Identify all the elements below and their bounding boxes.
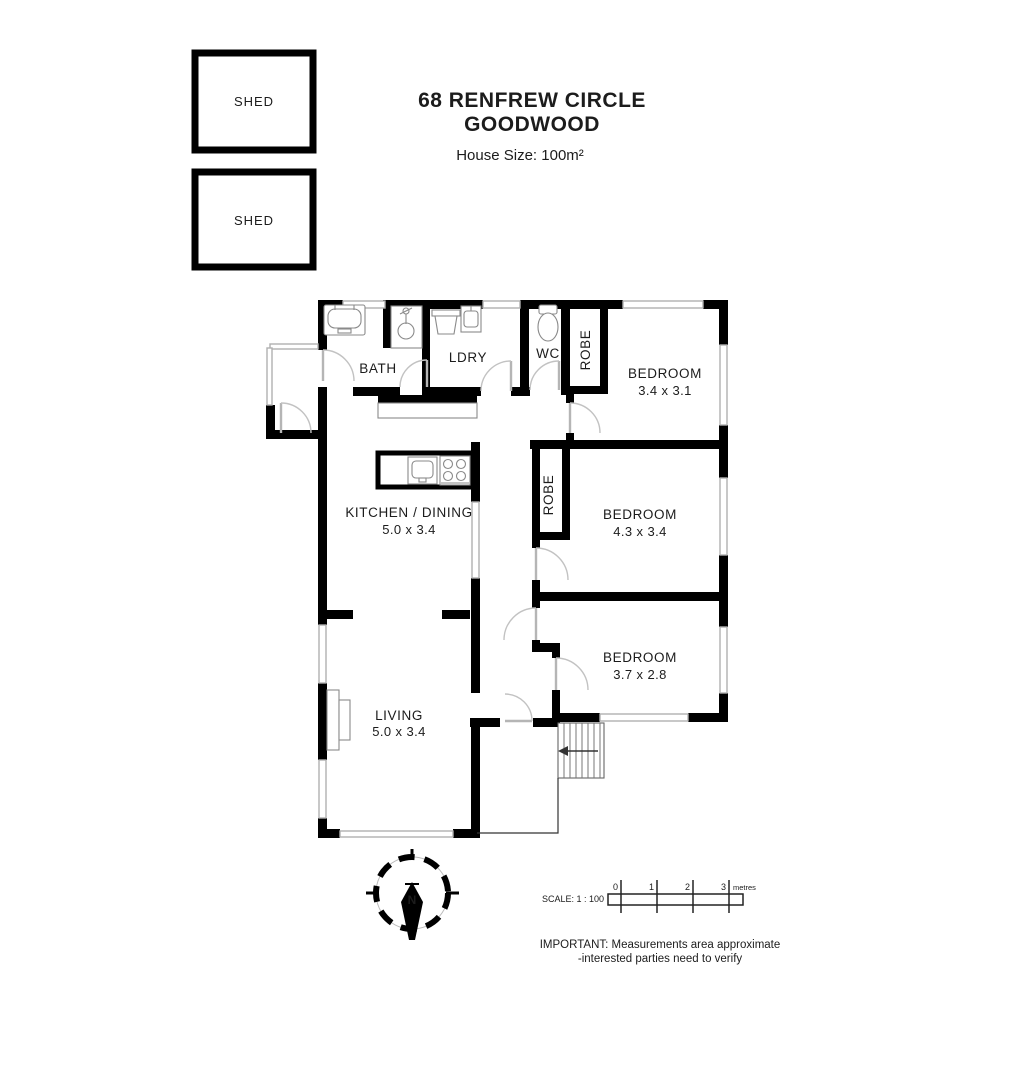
vanity-icon <box>324 305 365 335</box>
stairs <box>558 723 604 778</box>
kitchen-label: KITCHEN / DINING <box>345 505 472 520</box>
bedroom-2-label: BEDROOM <box>603 507 677 522</box>
robe-2-label: ROBE <box>541 475 556 516</box>
fireplace <box>327 690 350 750</box>
sink-icon <box>408 457 437 484</box>
shower-icon <box>391 306 422 348</box>
bedroom-2-dims: 4.3 x 3.4 <box>613 524 666 539</box>
living-label: LIVING <box>375 708 423 723</box>
compass-north-label: N <box>408 893 417 907</box>
title-line-2: GOODWOOD <box>464 113 600 136</box>
shed-2-label: SHED <box>234 213 274 228</box>
living-dims: 5.0 x 3.4 <box>372 724 425 739</box>
floorplan-drawing: SHED SHED 68 RENFREW CIRCLE GOODWOOD Hou… <box>0 0 1021 1080</box>
shed-1: SHED <box>195 53 313 150</box>
title-line-1: 68 RENFREW CIRCLE <box>418 89 646 112</box>
room-label-bath: BATH <box>359 361 396 376</box>
scale-tick-0: 0 <box>613 882 618 892</box>
kitchen-island <box>378 453 472 487</box>
linen-cupboard <box>378 403 477 418</box>
laundry-sink-icon <box>461 306 481 332</box>
north-compass-icon: N <box>366 849 459 940</box>
scale-tick-3: 3 <box>721 882 726 892</box>
room-label-ldry: LDRY <box>449 350 487 365</box>
scale-tick-2: 2 <box>685 882 690 892</box>
kitchen-dims: 5.0 x 3.4 <box>382 522 435 537</box>
bedroom-1-label: BEDROOM <box>628 366 702 381</box>
scale-tick-1: 1 <box>649 882 654 892</box>
cooktop-icon <box>440 456 470 485</box>
porch-outline <box>477 778 558 833</box>
shed-2: SHED <box>195 172 313 267</box>
room-label-wc: WC <box>536 346 560 361</box>
bedroom-1-dims: 3.4 x 3.1 <box>638 383 691 398</box>
bedroom-3-label: BEDROOM <box>603 650 677 665</box>
toilet-icon <box>538 305 558 341</box>
shed-1-label: SHED <box>234 94 274 109</box>
scale-label: SCALE: 1 : 100 <box>542 894 604 904</box>
robe-1-label: ROBE <box>578 330 593 371</box>
house-size: House Size: 100m² <box>456 147 584 164</box>
bedroom-3-dims: 3.7 x 2.8 <box>613 667 666 682</box>
scale-unit: metres <box>733 883 756 892</box>
laundry-trough-icon <box>432 310 460 334</box>
scale-bar: SCALE: 1 : 100 0 1 2 3 metres <box>542 880 756 913</box>
disclaimer-line-2: -interested parties need to verify <box>578 953 743 965</box>
floorplan-page: SHED SHED 68 RENFREW CIRCLE GOODWOOD Hou… <box>0 0 1021 1080</box>
windows <box>267 301 727 837</box>
disclaimer-line-1: IMPORTANT: Measurements area approximate <box>540 939 781 951</box>
disclaimer: IMPORTANT: Measurements area approximate… <box>540 939 781 965</box>
